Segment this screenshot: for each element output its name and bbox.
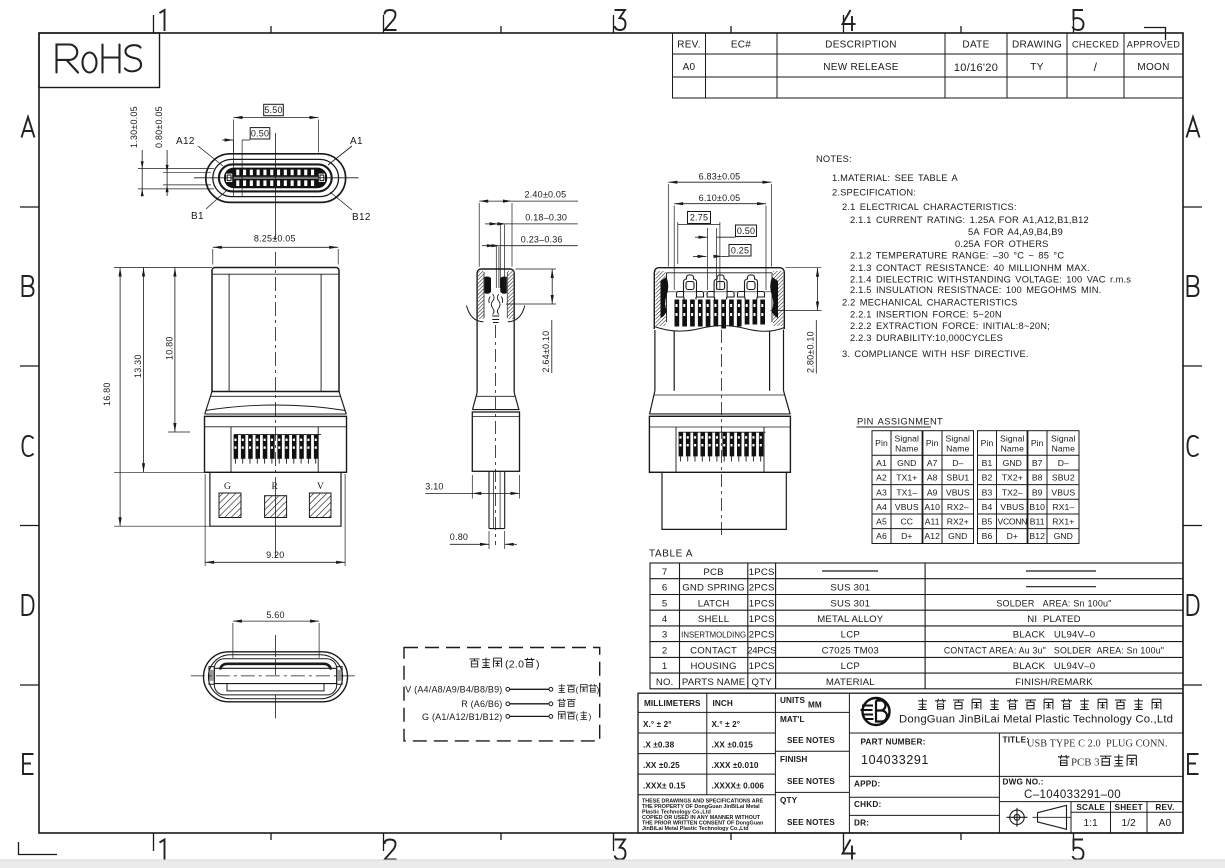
svg-text:A7: A7 (927, 458, 938, 468)
svg-text:A12: A12 (924, 531, 940, 541)
svg-text:MATERIAL: MATERIAL (826, 677, 875, 688)
svg-text:PCB 3: PCB 3 (1071, 757, 1100, 769)
svg-text:B3: B3 (982, 487, 993, 497)
svg-text:METAL ALLOY: METAL ALLOY (817, 614, 884, 625)
svg-text:2.1.3 CONTACT RESISTANCE: 4: 2.1.3 CONTACT RESISTANCE: 40 MILLIONHM M… (850, 263, 1090, 273)
svg-text:DRAWING: DRAWING (1012, 40, 1062, 51)
svg-text:VBUS: VBUS (1000, 502, 1024, 512)
svg-text:10/16'20: 10/16'20 (954, 62, 998, 74)
svg-text:0.80±0.05: 0.80±0.05 (154, 106, 164, 148)
svg-text:SBU2: SBU2 (1052, 473, 1075, 483)
svg-text:2PCS: 2PCS (749, 583, 775, 594)
svg-text:24PCS: 24PCS (747, 645, 776, 656)
svg-text:CC: CC (900, 517, 913, 527)
svg-text:PIN ASSIGNMENT: PIN ASSIGNMENT (857, 417, 943, 427)
svg-text:A3: A3 (876, 487, 887, 497)
svg-text:B1: B1 (982, 458, 993, 468)
svg-text:CHKD:: CHKD: (854, 800, 881, 809)
svg-text:A9: A9 (927, 487, 938, 497)
svg-text:DESCRIPTION: DESCRIPTION (825, 40, 897, 51)
svg-text:Name: Name (946, 444, 969, 454)
svg-text:A4: A4 (876, 502, 887, 512)
svg-text:GND: GND (1003, 458, 1022, 468)
svg-text:3: 3 (662, 630, 668, 641)
svg-text:QTY: QTY (752, 677, 773, 688)
svg-text:5.50: 5.50 (264, 105, 282, 115)
svg-text:TX1+: TX1+ (896, 473, 917, 483)
svg-text:RX1+: RX1+ (1052, 517, 1074, 527)
svg-text:B5: B5 (982, 517, 993, 527)
svg-text:RX1–: RX1– (1052, 502, 1074, 512)
svg-text:G (A1/A12/B1/B12): G (A1/A12/B1/B12) (422, 712, 502, 722)
svg-text:2: 2 (662, 645, 668, 656)
svg-text:2.1.5 INSULATION RESISTNACE:: 2.1.5 INSULATION RESISTNACE: 100 MEGOHMS… (850, 285, 1101, 295)
svg-text:B8: B8 (1032, 473, 1043, 483)
svg-text:TABLE A: TABLE A (649, 549, 693, 560)
svg-text:1PCS: 1PCS (749, 614, 775, 625)
svg-text:(2.0: (2.0 (505, 659, 524, 671)
svg-text:8.25±0.05: 8.25±0.05 (254, 234, 296, 244)
svg-text:G: G (224, 482, 231, 492)
svg-text:0.50: 0.50 (251, 128, 269, 138)
svg-text:A6: A6 (876, 531, 887, 541)
svg-text:FINISH/REMARK: FINISH/REMARK (1015, 677, 1093, 688)
svg-text:Name: Name (1052, 444, 1075, 454)
svg-text:B2: B2 (982, 473, 993, 483)
svg-text:JinBiLai Metal Plastic Technol: JinBiLai Metal Plastic Technology Co.,Lt… (642, 826, 749, 832)
svg-text:2.2.1 INSERTION FORCE: 5~20: 2.2.1 INSERTION FORCE: 5~20N (850, 310, 1002, 320)
svg-text:0.25: 0.25 (731, 245, 749, 255)
svg-text:2.75: 2.75 (690, 213, 708, 223)
svg-text:TX2–: TX2– (1002, 487, 1023, 497)
svg-text:6.83±0.05: 6.83±0.05 (699, 172, 741, 182)
svg-text:): ) (589, 711, 592, 721)
svg-text:INSERTMOLDING: INSERTMOLDING (681, 631, 746, 640)
svg-text:): ) (597, 684, 600, 694)
svg-text:X.° ± 2°: X.° ± 2° (643, 720, 672, 729)
svg-text:2.SPECIFICATION:: 2.SPECIFICATION: (832, 188, 916, 198)
svg-text:CHECKED: CHECKED (1072, 40, 1119, 50)
svg-text:2.1 ELECTRICAL CHARACTERISTI: 2.1 ELECTRICAL CHARACTERISTICS: (842, 202, 1017, 212)
svg-text:1/2: 1/2 (1121, 818, 1136, 829)
svg-text:SCALE: SCALE (1076, 803, 1105, 812)
svg-text:1.MATERIAL: SEE TABLE A: 1.MATERIAL: SEE TABLE A (832, 173, 958, 183)
svg-text:GND SPRING: GND SPRING (682, 583, 745, 594)
svg-text:9.20: 9.20 (266, 550, 284, 560)
svg-text:Pin: Pin (981, 438, 994, 448)
svg-text:0.25A FOR OTHERS: 0.25A FOR OTHERS (955, 239, 1049, 249)
svg-text:SOLDER AREA: Sn 100u": SOLDER AREA: Sn 100u" (996, 598, 1111, 608)
svg-text:HOUSING: HOUSING (691, 661, 737, 672)
svg-text:A0: A0 (1159, 818, 1172, 829)
svg-text:LCP: LCP (841, 630, 860, 641)
svg-text:10.80: 10.80 (165, 336, 175, 360)
svg-text:VBUS: VBUS (1051, 487, 1075, 497)
svg-text:104033291: 104033291 (861, 753, 929, 767)
svg-text:Name: Name (1001, 444, 1024, 454)
svg-text:0.80: 0.80 (450, 532, 468, 542)
svg-text:A10: A10 (924, 502, 940, 512)
svg-text:B12: B12 (352, 212, 371, 223)
svg-text:(: ( (576, 711, 579, 721)
svg-text:B10: B10 (1029, 502, 1045, 512)
svg-text:.XXX± 0.15: .XXX± 0.15 (643, 782, 686, 791)
svg-text:FINISH: FINISH (780, 755, 807, 764)
svg-text:C–104033291–00: C–104033291–00 (1024, 789, 1121, 801)
svg-text:REV.: REV. (677, 40, 701, 51)
svg-text:MM: MM (808, 701, 822, 710)
svg-text:GND: GND (1054, 531, 1073, 541)
svg-text:SHELL: SHELL (698, 614, 730, 625)
svg-text:/: / (1094, 60, 1098, 74)
svg-text:SUS 301: SUS 301 (830, 598, 870, 609)
svg-text:NEW RELEASE: NEW RELEASE (823, 62, 899, 73)
svg-text:2.1.2 TEMPERATURE RANGE: –3: 2.1.2 TEMPERATURE RANGE: –30 °C ~ 85 °C (850, 251, 1064, 261)
svg-text:.X ±0.38: .X ±0.38 (643, 741, 675, 750)
svg-text:B11: B11 (1030, 517, 1045, 527)
svg-text:TITLE:: TITLE: (1003, 736, 1030, 745)
svg-text:GND: GND (948, 531, 967, 541)
svg-text:1:1: 1:1 (1083, 818, 1098, 829)
svg-text:D–: D– (1058, 458, 1069, 468)
svg-text:APPD:: APPD: (854, 780, 880, 789)
svg-text:2.2.2 EXTRACTION FORCE: INI: 2.2.2 EXTRACTION FORCE: INITIAL:8~20N; (850, 321, 1050, 331)
svg-text:A1: A1 (350, 136, 363, 147)
svg-text:V: V (317, 482, 324, 492)
svg-text:B7: B7 (1032, 458, 1043, 468)
svg-text:Pin: Pin (926, 438, 939, 448)
svg-text:Signal: Signal (1000, 434, 1025, 444)
svg-text:2.2 MECHANICAL CHARACTERISTI: 2.2 MECHANICAL CHARACTERISTICS (842, 298, 1018, 308)
svg-text:1PCS: 1PCS (749, 661, 775, 672)
svg-text:2.2.3 DURABILITY:10,000CYCLES: 2.2.3 DURABILITY:10,000CYCLES (850, 333, 1003, 343)
svg-text:1.30±0.05: 1.30±0.05 (129, 106, 139, 148)
svg-text:2.40±0.05: 2.40±0.05 (525, 190, 567, 200)
svg-text:1PCS: 1PCS (749, 598, 775, 609)
svg-text:B12: B12 (1029, 531, 1045, 541)
svg-text:REV.: REV. (1155, 803, 1174, 812)
svg-text:DongGuan JinBiLai Metal Pla: DongGuan JinBiLai Metal Plastic Technolo… (899, 714, 1173, 726)
svg-text:MAT'L: MAT'L (780, 715, 805, 724)
svg-text:V (A4/A8/A9/B4/B8/B9): V (A4/A8/A9/B4/B8/B9) (405, 685, 502, 695)
svg-text:BLACK UL94V–0: BLACK UL94V–0 (1013, 630, 1095, 641)
svg-text:DR:: DR: (854, 819, 869, 828)
svg-text:3. COMPLIANCE WITH HSF DIR: 3. COMPLIANCE WITH HSF DIRECTIVE. (842, 349, 1029, 359)
svg-text:EC#: EC# (731, 40, 751, 51)
svg-text:2PCS: 2PCS (749, 630, 775, 641)
svg-text:MOON: MOON (1137, 62, 1169, 73)
svg-text:CONTACT AREA: Au 3u" SOLDER: CONTACT AREA: Au 3u" SOLDER AREA: Sn 100… (944, 645, 1164, 655)
svg-text:4: 4 (662, 614, 668, 625)
svg-text:6.10±0.05: 6.10±0.05 (699, 193, 741, 203)
svg-text:TY: TY (1030, 62, 1043, 73)
svg-text:INCH: INCH (713, 699, 733, 708)
svg-text:RX2–: RX2– (947, 502, 969, 512)
svg-text:A1: A1 (876, 458, 887, 468)
svg-text:16.80: 16.80 (102, 382, 112, 406)
svg-text:D+: D+ (1007, 531, 1018, 541)
svg-text:5A FOR A4,A9,B4,B9: 5A FOR A4,A9,B4,B9 (968, 227, 1063, 237)
svg-text:A2: A2 (876, 473, 887, 483)
svg-text:0.50: 0.50 (737, 226, 755, 236)
svg-text:PCB: PCB (703, 567, 723, 578)
svg-text:A5: A5 (876, 517, 887, 527)
svg-text:Signal: Signal (946, 434, 971, 444)
svg-text:APPROVED: APPROVED (1127, 40, 1181, 50)
svg-text:NI PLATED: NI PLATED (1027, 614, 1081, 625)
svg-text:A0: A0 (683, 62, 696, 73)
svg-text:MILLIMETERS: MILLIMETERS (644, 699, 701, 708)
svg-text:DWG NO.:: DWG NO.: (1003, 778, 1044, 787)
svg-text:D–: D– (952, 458, 963, 468)
svg-text:6: 6 (662, 583, 668, 594)
svg-text:X.° ± 2°: X.° ± 2° (712, 720, 741, 729)
svg-text:Signal: Signal (1051, 434, 1076, 444)
svg-text:.XXXX± 0.006: .XXXX± 0.006 (712, 782, 765, 791)
svg-text:1: 1 (662, 661, 668, 672)
svg-text:SBU1: SBU1 (946, 473, 969, 483)
svg-text:A11: A11 (925, 517, 940, 527)
svg-text:.XX ±0.25: .XX ±0.25 (643, 761, 680, 770)
svg-text:.XX ±0.015: .XX ±0.015 (712, 741, 754, 750)
svg-text:A12: A12 (176, 136, 195, 147)
svg-text:2.1.4 DIELECTRIC WITHSTANDIN: 2.1.4 DIELECTRIC WITHSTANDING VOLTAGE: 1… (850, 275, 1131, 285)
svg-text:Pin: Pin (1031, 438, 1044, 448)
svg-text:.XXX ±0.010: .XXX ±0.010 (712, 761, 759, 770)
svg-text:1PCS: 1PCS (749, 567, 775, 578)
svg-text:DATE: DATE (962, 40, 989, 51)
svg-text:B6: B6 (982, 531, 993, 541)
svg-text:2.80±0.10: 2.80±0.10 (806, 331, 816, 373)
svg-text:D+: D+ (901, 531, 912, 541)
svg-text:0.18–0.30: 0.18–0.30 (525, 213, 567, 223)
svg-text:(: ( (576, 684, 579, 694)
svg-text:SUS 301: SUS 301 (830, 583, 870, 594)
svg-text:QTY: QTY (780, 796, 798, 805)
svg-text:NOTES:: NOTES: (816, 154, 852, 164)
svg-text:7: 7 (662, 567, 668, 578)
svg-text:USB TYPE C 2.0 PLUG CONN.: USB TYPE C 2.0 PLUG CONN. (1027, 739, 1168, 750)
svg-text:3.10: 3.10 (425, 481, 443, 491)
svg-text:): ) (536, 659, 540, 671)
svg-text:R (A6/B6): R (A6/B6) (461, 699, 502, 709)
svg-text:R: R (272, 482, 279, 492)
svg-text:SEE NOTES: SEE NOTES (787, 818, 835, 827)
svg-text:TX2+: TX2+ (1002, 473, 1023, 483)
svg-text:5.60: 5.60 (266, 610, 284, 620)
svg-text:B9: B9 (1032, 487, 1043, 497)
svg-text:2.64±0.10: 2.64±0.10 (541, 331, 551, 373)
svg-text:NO.: NO. (656, 677, 674, 688)
svg-text:SEE NOTES: SEE NOTES (787, 736, 835, 745)
svg-text:UNITS: UNITS (780, 696, 806, 705)
svg-text:TX1–: TX1– (896, 487, 917, 497)
svg-text:BLACK UL94V–0: BLACK UL94V–0 (1013, 661, 1095, 672)
svg-text:RX2+: RX2+ (947, 517, 969, 527)
svg-text:C7025 TM03: C7025 TM03 (822, 645, 879, 656)
svg-text:B4: B4 (982, 502, 993, 512)
svg-text:VBUS: VBUS (946, 487, 970, 497)
svg-text:2.1.1 CURRENT RATING: 1.25A: 2.1.1 CURRENT RATING: 1.25A FOR A1,A12,B… (850, 215, 1089, 225)
svg-text:LCP: LCP (841, 661, 860, 672)
svg-text:CONTACT: CONTACT (690, 645, 737, 656)
svg-text:13.30: 13.30 (133, 354, 143, 378)
svg-text:0.23–0.36: 0.23–0.36 (521, 235, 563, 245)
svg-text:SHEET: SHEET (1115, 803, 1143, 812)
svg-text:Name: Name (895, 444, 918, 454)
svg-text:A8: A8 (927, 473, 938, 483)
svg-text:SEE NOTES: SEE NOTES (787, 777, 835, 786)
svg-text:VBUS: VBUS (895, 502, 919, 512)
svg-text:LATCH: LATCH (698, 598, 730, 609)
svg-text:PARTS NAME: PARTS NAME (682, 677, 745, 688)
svg-text:Signal: Signal (895, 434, 920, 444)
svg-text:Pin: Pin (875, 438, 888, 448)
svg-text:B1: B1 (191, 211, 204, 222)
svg-text:VCONN: VCONN (998, 517, 1028, 527)
svg-text:GND: GND (897, 458, 916, 468)
svg-text:PART NUMBER:: PART NUMBER: (861, 738, 926, 747)
svg-text:5: 5 (662, 598, 668, 609)
